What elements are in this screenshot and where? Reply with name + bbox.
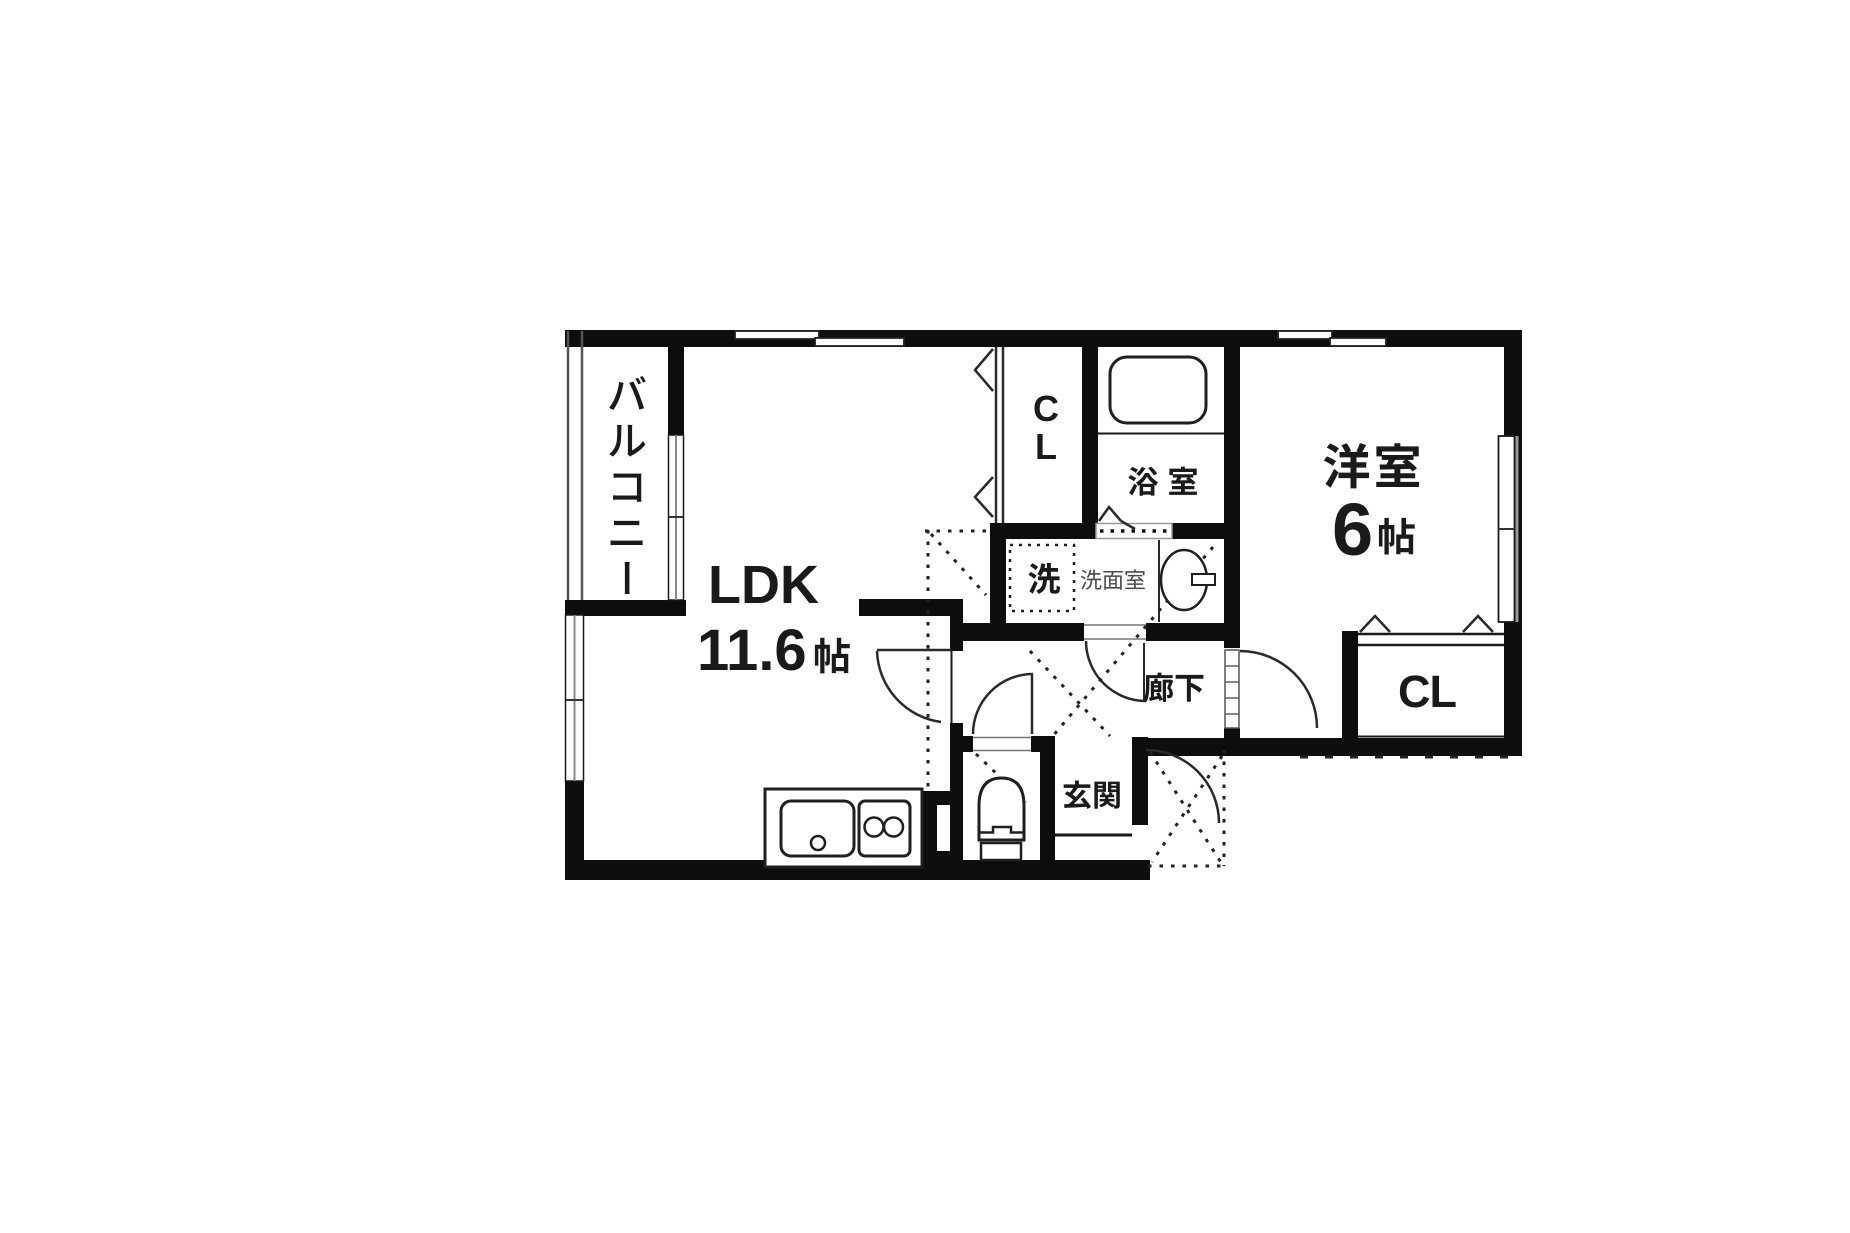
svg-text:6: 6 bbox=[1332, 488, 1373, 571]
svg-text:LDK: LDK bbox=[708, 555, 819, 615]
svg-text:CL: CL bbox=[1398, 666, 1456, 717]
svg-text:L: L bbox=[1035, 426, 1057, 467]
svg-text:11.6: 11.6 bbox=[697, 618, 807, 683]
svg-text:C: C bbox=[1033, 388, 1059, 429]
